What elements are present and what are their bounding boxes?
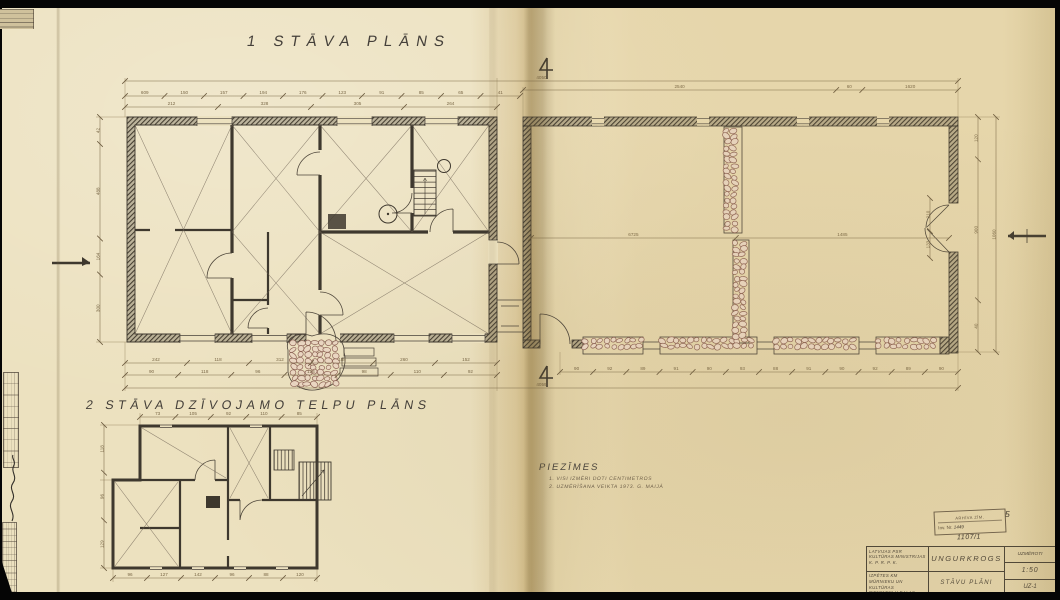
svg-text:42: 42 bbox=[95, 128, 100, 134]
notes-header: PIEZĪMES bbox=[538, 462, 600, 473]
svg-text:124: 124 bbox=[307, 369, 315, 374]
svg-text:260: 260 bbox=[400, 357, 408, 362]
svg-text:91: 91 bbox=[674, 366, 680, 371]
scan-edge-right bbox=[1055, 0, 1060, 600]
svg-text:609: 609 bbox=[141, 90, 149, 95]
second-floor-plan bbox=[113, 424, 331, 571]
svg-text:85: 85 bbox=[419, 90, 425, 95]
plan1-title: 1 STĀVA PLĀNS bbox=[246, 33, 453, 50]
svg-text:142: 142 bbox=[194, 572, 202, 577]
svg-text:312: 312 bbox=[276, 357, 284, 362]
scan-edge-top bbox=[0, 0, 1060, 8]
plan2-title: 2 STĀVA DZĪVOJAMO TELPU PLĀNS bbox=[85, 398, 432, 412]
scan-corner-bottom-left bbox=[0, 556, 13, 596]
svg-text:210: 210 bbox=[925, 210, 930, 218]
svg-text:150: 150 bbox=[180, 90, 188, 95]
svg-text:300: 300 bbox=[95, 304, 100, 312]
object-line-2: MŪRNIEKU UN KULTŪRAS bbox=[869, 579, 926, 591]
svg-text:92: 92 bbox=[873, 366, 879, 371]
svg-text:1060: 1060 bbox=[991, 229, 996, 240]
stamp-inventory-label: Inv. Nr. bbox=[938, 525, 952, 531]
svg-text:118: 118 bbox=[99, 445, 104, 453]
title-block-organization: LATVIJAS PSR KULTŪRAS MINISTRIJAS K. P. … bbox=[867, 547, 928, 571]
margin-stamp-block-top-left bbox=[0, 9, 34, 29]
svg-text:129: 129 bbox=[99, 540, 104, 548]
svg-text:91: 91 bbox=[379, 90, 385, 95]
stamp-file-number: 1107/1 bbox=[957, 534, 981, 542]
staircase-1f bbox=[414, 170, 436, 216]
svg-text:6725: 6725 bbox=[628, 232, 639, 237]
svg-text:157: 157 bbox=[220, 90, 228, 95]
rubble-stone-texture bbox=[288, 127, 937, 389]
svg-text:120: 120 bbox=[296, 572, 304, 577]
svg-text:152: 152 bbox=[462, 357, 470, 362]
svg-text:1620: 1620 bbox=[905, 84, 916, 89]
svg-text:92: 92 bbox=[468, 369, 474, 374]
svg-text:164: 164 bbox=[95, 252, 100, 260]
svg-text:188: 188 bbox=[338, 357, 346, 362]
dwelling-partitions bbox=[135, 125, 489, 334]
handwritten-signature bbox=[1, 453, 21, 525]
scanned-blueprint-sheet: 4050609150157194176123918565412123283052… bbox=[0, 0, 1060, 600]
stamp-inventory-number: 1449 bbox=[954, 525, 964, 530]
stamp-inventory-row: Inv. Nr. 1449 bbox=[938, 523, 1002, 531]
svg-text:96: 96 bbox=[229, 572, 235, 577]
stamp-title: ARHĪVA ZĪM. bbox=[938, 513, 1002, 523]
svg-text:194: 194 bbox=[259, 90, 267, 95]
title-block: LATVIJAS PSR KULTŪRAS MINISTRIJAS K. P. … bbox=[866, 546, 1056, 596]
org-line-3: K. P. R. P. K. bbox=[869, 560, 926, 566]
svg-text:88: 88 bbox=[773, 366, 779, 371]
svg-text:90: 90 bbox=[939, 366, 945, 371]
svg-text:91: 91 bbox=[806, 366, 812, 371]
svg-text:96: 96 bbox=[127, 572, 133, 577]
svg-text:96: 96 bbox=[255, 369, 261, 374]
svg-text:4059: 4059 bbox=[536, 382, 547, 387]
floor-plan-drawing: 4050609150157194176123918565412123283052… bbox=[0, 0, 1060, 600]
scan-edge-bottom bbox=[0, 592, 1060, 600]
note-1: 1. VISI IZMĒRI DOTI CENTIMETROS bbox=[549, 476, 653, 482]
svg-text:488: 488 bbox=[95, 187, 100, 195]
svg-text:264: 264 bbox=[447, 101, 455, 106]
archive-stamp: ARHĪVA ZĪM. Inv. Nr. 1449 bbox=[934, 508, 1007, 535]
svg-text:90: 90 bbox=[707, 366, 713, 371]
stamp-mark: 5 bbox=[1005, 509, 1010, 519]
title-block-scale: 1:50 bbox=[1005, 562, 1055, 578]
svg-text:2540: 2540 bbox=[674, 84, 685, 89]
svg-text:89: 89 bbox=[906, 366, 912, 371]
svg-text:60: 60 bbox=[847, 84, 853, 89]
svg-text:40: 40 bbox=[973, 323, 978, 329]
svg-text:65: 65 bbox=[458, 90, 464, 95]
door-arcs bbox=[207, 152, 949, 344]
svg-text:127: 127 bbox=[160, 572, 168, 577]
title-block-status: UZMĒROTI bbox=[1005, 547, 1055, 562]
svg-text:212: 212 bbox=[168, 101, 176, 106]
svg-text:118: 118 bbox=[201, 369, 209, 374]
svg-text:900: 900 bbox=[973, 226, 978, 234]
svg-text:120: 120 bbox=[973, 134, 978, 142]
stone-wall-outlines bbox=[583, 127, 940, 354]
svg-text:98: 98 bbox=[362, 369, 368, 374]
svg-text:89: 89 bbox=[640, 366, 646, 371]
svg-text:110: 110 bbox=[414, 369, 422, 374]
svg-text:328: 328 bbox=[261, 101, 269, 106]
svg-text:4050: 4050 bbox=[536, 75, 547, 80]
svg-text:88: 88 bbox=[263, 572, 269, 577]
svg-text:90: 90 bbox=[839, 366, 845, 371]
svg-text:93: 93 bbox=[740, 366, 746, 371]
svg-text:176: 176 bbox=[299, 90, 307, 95]
svg-text:123: 123 bbox=[338, 90, 346, 95]
svg-text:118: 118 bbox=[214, 357, 222, 362]
svg-text:90: 90 bbox=[149, 369, 155, 374]
svg-text:1485: 1485 bbox=[837, 232, 848, 237]
svg-text:92: 92 bbox=[607, 366, 613, 371]
svg-text:41: 41 bbox=[498, 90, 504, 95]
title-block-project: UNGURKROGS bbox=[929, 547, 1004, 571]
svg-text:90: 90 bbox=[574, 366, 580, 371]
svg-text:305: 305 bbox=[354, 101, 362, 106]
svg-text:96: 96 bbox=[99, 494, 104, 500]
note-2: 2. UZMĒRĪŠANA VEIKTA 1973. G. MAIJĀ bbox=[549, 484, 664, 490]
svg-text:242: 242 bbox=[152, 357, 160, 362]
passage bbox=[497, 300, 523, 332]
scan-edge-left bbox=[0, 290, 2, 600]
svg-text:133: 133 bbox=[925, 240, 930, 248]
